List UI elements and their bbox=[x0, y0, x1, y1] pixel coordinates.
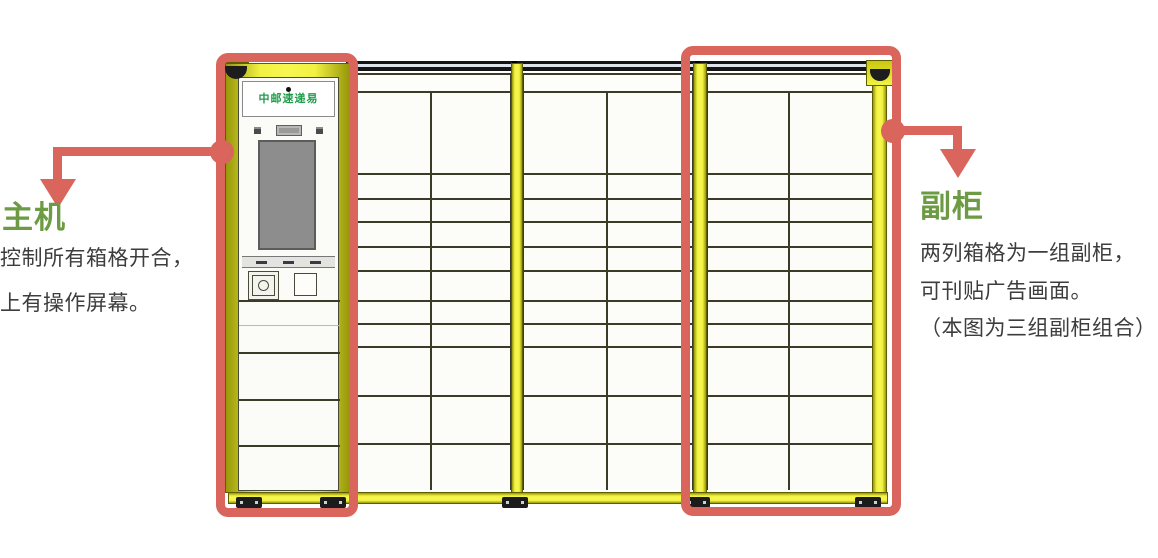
locker-door bbox=[354, 325, 432, 348]
locker-diagram: 中邮速递易 bbox=[0, 0, 1158, 558]
locker-door bbox=[608, 397, 692, 445]
sub-cabinet-arrow-icon bbox=[940, 149, 976, 178]
locker-door bbox=[524, 200, 608, 223]
locker-group-1 bbox=[352, 73, 512, 490]
locker-door bbox=[354, 223, 432, 248]
locker-door bbox=[432, 272, 510, 302]
group-header-band bbox=[354, 75, 510, 93]
locker-door bbox=[524, 325, 608, 348]
locker-door bbox=[608, 272, 692, 302]
main-unit-anchor-dot bbox=[210, 140, 234, 164]
locker-door bbox=[608, 223, 692, 248]
locker-door bbox=[524, 175, 608, 200]
sub-cabinet-highlight bbox=[681, 46, 901, 516]
locker-door bbox=[432, 445, 510, 490]
locker-door bbox=[354, 302, 432, 325]
locker-door bbox=[608, 302, 692, 325]
locker-door bbox=[354, 272, 432, 302]
locker-door bbox=[524, 272, 608, 302]
locker-door bbox=[524, 302, 608, 325]
locker-door bbox=[608, 445, 692, 490]
frame-post bbox=[511, 63, 523, 493]
locker-door bbox=[608, 200, 692, 223]
sub-cabinet-desc-line: 两列箱格为一组副柜， bbox=[920, 243, 1135, 264]
main-unit-callout-line bbox=[53, 147, 62, 181]
locker-group-2 bbox=[522, 73, 694, 490]
foot-bracket bbox=[502, 497, 528, 508]
sub-cabinet-desc-line: 可刊贴广告画面。 bbox=[920, 281, 1092, 302]
locker-door bbox=[608, 248, 692, 272]
door-grid bbox=[354, 93, 510, 490]
locker-door bbox=[608, 348, 692, 397]
locker-door bbox=[608, 325, 692, 348]
locker-door bbox=[432, 200, 510, 223]
main-unit-desc-line: 上有操作屏幕。 bbox=[0, 293, 151, 314]
locker-door bbox=[354, 445, 432, 490]
locker-door bbox=[524, 445, 608, 490]
locker-door bbox=[354, 200, 432, 223]
sub-cabinet-title: 副柜 bbox=[920, 191, 984, 222]
locker-door bbox=[354, 175, 432, 200]
locker-door bbox=[432, 223, 510, 248]
sub-cabinet-anchor-dot bbox=[881, 119, 905, 143]
door-grid bbox=[524, 93, 692, 490]
main-unit-title: 主机 bbox=[2, 202, 66, 233]
locker-door bbox=[354, 93, 432, 175]
locker-door bbox=[432, 325, 510, 348]
locker-door bbox=[432, 302, 510, 325]
locker-door bbox=[608, 175, 692, 200]
locker-door bbox=[524, 248, 608, 272]
locker-door bbox=[432, 248, 510, 272]
locker-door bbox=[524, 348, 608, 397]
locker-door bbox=[524, 93, 608, 175]
locker-door bbox=[524, 397, 608, 445]
main-unit-desc-line: 控制所有箱格开合， bbox=[0, 248, 194, 269]
locker-door bbox=[354, 348, 432, 397]
locker-door bbox=[524, 223, 608, 248]
locker-door bbox=[432, 397, 510, 445]
locker-door bbox=[432, 175, 510, 200]
main-unit-callout-line bbox=[53, 147, 219, 156]
locker-door bbox=[354, 248, 432, 272]
sub-cabinet-desc-line: （本图为三组副柜组合） bbox=[920, 318, 1157, 339]
locker-door bbox=[608, 93, 692, 175]
sub-cabinet-callout-line bbox=[953, 126, 962, 151]
group-header-band bbox=[524, 75, 692, 93]
main-unit-highlight bbox=[216, 53, 358, 517]
locker-door bbox=[432, 93, 510, 175]
locker-door bbox=[354, 397, 432, 445]
locker-door bbox=[432, 348, 510, 397]
